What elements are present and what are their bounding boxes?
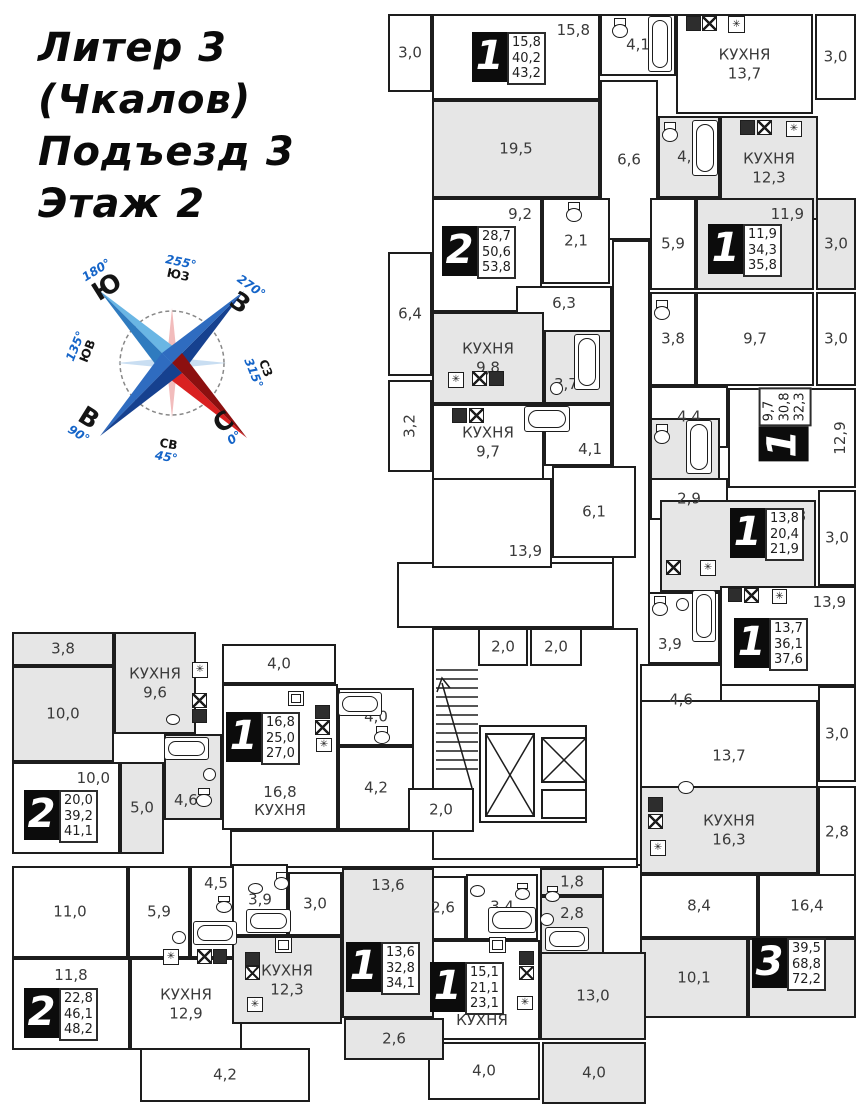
balcony-label: 4,0	[582, 1064, 606, 1083]
sink-icon	[166, 714, 180, 725]
vent-icon	[786, 121, 802, 137]
toilet-icon	[274, 872, 289, 890]
balcony: 3,0	[815, 14, 856, 100]
vent-icon	[247, 997, 263, 1012]
apartment-areas: 20,039,241,1	[59, 790, 98, 843]
shaft-label: 2,0	[544, 638, 568, 657]
toilet-icon	[515, 883, 530, 900]
washer-icon	[469, 408, 484, 423]
apartment-badge: 220,039,241,1	[24, 790, 98, 843]
room-label: 13,6	[371, 876, 404, 895]
toilet-icon	[654, 300, 670, 320]
kitchen-label: КУХНЯ12,3	[743, 149, 795, 187]
bathroom-label: 3,8	[661, 330, 685, 349]
apartment-badge: 113,632,834,1	[346, 942, 420, 995]
room: 10,0	[12, 666, 114, 762]
washer-icon	[666, 560, 681, 575]
balcony: 4,2	[140, 1048, 310, 1102]
balcony: 3,2	[388, 380, 432, 472]
sink-icon	[470, 885, 485, 897]
sink-icon	[172, 931, 186, 944]
tub-h-icon	[193, 921, 237, 945]
apartment-areas: 13,632,834,1	[381, 942, 420, 995]
washer-icon	[744, 588, 759, 603]
vent-icon	[700, 560, 716, 576]
kitchen-label: КУХНЯ13,7	[719, 45, 771, 83]
room-label: 11,0	[53, 903, 86, 922]
balcony-label: 3,2	[401, 414, 420, 438]
tub-h-icon	[246, 909, 291, 933]
hallway: 4,2	[338, 746, 414, 830]
hallway: 3,0	[288, 872, 342, 936]
tub-v-icon	[648, 16, 672, 72]
stove-icon	[213, 949, 227, 964]
hallway-label: 2,6	[382, 1030, 406, 1049]
sink-icon	[540, 913, 554, 926]
room: 10,1	[640, 938, 748, 1018]
fridge-icon	[489, 937, 506, 953]
stove-icon	[245, 952, 260, 966]
washer-icon	[648, 814, 663, 829]
hallway-label: 6,3	[552, 294, 576, 313]
room-label: 11,9	[771, 205, 804, 224]
toilet-icon	[374, 726, 390, 744]
tub-h-icon	[488, 907, 536, 933]
bathroom-label: 4,1	[626, 36, 650, 55]
sink-icon	[248, 883, 263, 894]
tub-h-icon	[545, 927, 589, 951]
room: 13,9	[432, 478, 552, 568]
toilet-icon	[662, 122, 678, 142]
hallway: 8,4	[640, 874, 758, 938]
hallway: 2,6	[344, 1018, 444, 1060]
apartment-badge: 19,730,832,3	[759, 387, 812, 461]
balcony: 2,8	[818, 786, 856, 878]
washer-icon	[192, 693, 207, 708]
apartment-rooms-count: 1	[430, 962, 465, 1012]
apartment-areas: 22,846,148,2	[59, 988, 98, 1041]
room: 19,5	[432, 100, 600, 198]
room: 11,0	[12, 866, 128, 958]
hallway-label: 5,0	[130, 799, 154, 818]
room-label: 16,4	[790, 897, 823, 916]
apartment-areas: 15,121,123,1	[465, 962, 504, 1015]
shaft-label: 2,0	[491, 638, 515, 657]
hallway-label: 2,9	[677, 490, 701, 509]
vent-icon	[192, 662, 208, 678]
apartment-areas: 28,750,653,8	[477, 226, 516, 279]
apartment-badge: 228,750,653,8	[442, 226, 516, 279]
vent-icon	[772, 589, 787, 604]
apartment-areas: 39,568,872,2	[787, 938, 826, 991]
apartment-rooms-count: 2	[442, 226, 477, 276]
apartment-areas: 9,730,832,3	[759, 387, 812, 426]
tub-h-icon	[524, 406, 570, 432]
room-label: 13,0	[576, 987, 609, 1006]
bathroom-label: 4,5	[204, 874, 228, 893]
stairs-elevators-icon	[432, 628, 638, 860]
toilet-icon	[566, 202, 582, 222]
hallway-label: 6,6	[617, 151, 641, 170]
kitchen: КУХНЯ12,9	[130, 958, 242, 1050]
balcony: 4,0	[542, 1042, 646, 1104]
balcony-label: 3,0	[824, 48, 848, 67]
balcony: 4,0	[222, 644, 336, 684]
toilet-icon	[612, 18, 628, 38]
apartment-badge: 339,568,872,2	[752, 938, 826, 991]
washer-icon	[315, 720, 330, 735]
toilet-icon	[652, 596, 668, 616]
apartment-badge: 115,840,243,2	[472, 32, 546, 85]
toilet-icon	[216, 896, 232, 913]
sink-icon	[678, 781, 694, 794]
apartment-areas: 11,934,335,8	[743, 224, 782, 277]
room-label: 10,0	[77, 769, 110, 788]
vent-icon	[517, 996, 533, 1010]
bathroom-label: 4,6	[174, 791, 198, 810]
kitchen-label: КУХНЯ12,9	[160, 985, 212, 1023]
balcony-label: 3,0	[824, 235, 848, 254]
apartment-badge: 111,934,335,8	[708, 224, 782, 277]
apartment-rooms-count: 1	[346, 942, 381, 992]
vent-icon	[728, 16, 745, 33]
apartment-areas: 16,825,027,0	[261, 712, 300, 765]
balcony-label: 3,0	[398, 44, 422, 63]
apartment-rooms-count: 1	[226, 712, 261, 762]
fridge-icon	[275, 937, 292, 953]
room: 16,4	[758, 874, 856, 938]
hallway-label: 3,0	[303, 895, 327, 914]
hallway-label: 6,1	[582, 503, 606, 522]
room-label: 19,5	[499, 140, 532, 159]
hallway-label: 8,4	[687, 897, 711, 916]
balcony: 6,4	[388, 252, 432, 376]
stove-icon	[315, 705, 330, 719]
sink-icon	[203, 768, 216, 781]
kitchen: КУХНЯ9,8	[432, 312, 544, 404]
hallway-label: 4,2	[364, 779, 388, 798]
balcony-label: 4,0	[472, 1062, 496, 1081]
tub-v-icon	[692, 120, 718, 176]
room-label: 9,7	[743, 330, 767, 349]
sink-icon	[676, 598, 689, 611]
sink-icon	[550, 382, 563, 395]
balcony-label: 3,0	[824, 330, 848, 349]
apartment-rooms-count: 1	[708, 224, 743, 274]
tub-v-icon	[686, 420, 712, 474]
hallway: 6,1	[552, 466, 636, 558]
toilet-icon	[196, 788, 212, 807]
vent-icon	[650, 840, 666, 856]
apartment-rooms-count: 2	[24, 988, 59, 1038]
tub-v-icon	[692, 590, 716, 642]
hallway: 5,9	[650, 198, 696, 290]
washer-icon	[519, 966, 534, 980]
wc-label: 2,1	[564, 232, 588, 251]
balcony-label: 3,0	[825, 725, 849, 744]
balcony-label: 6,4	[398, 305, 422, 324]
toilet-icon	[545, 886, 560, 902]
balcony: 3,0	[818, 686, 856, 782]
washer-icon	[472, 371, 487, 386]
vent-icon	[163, 949, 179, 965]
vent-icon	[448, 372, 464, 388]
stove-icon	[648, 797, 663, 812]
hallway-label: 4,6	[669, 691, 693, 710]
apartment-badge: 115,121,123,1	[430, 962, 504, 1015]
washer-icon	[197, 949, 212, 964]
room-label: 9,2	[508, 205, 532, 224]
stove-icon	[452, 408, 467, 423]
kitchen-living-label: 16,8КУХНЯ	[254, 783, 306, 821]
apartment-rooms-count: 1	[472, 32, 507, 82]
apartment-badge: 222,846,148,2	[24, 988, 98, 1041]
hallway: 5,0	[120, 762, 164, 854]
balcony-label: 4,0	[267, 655, 291, 674]
kitchen: КУХНЯ9,6	[114, 632, 196, 734]
room: 13,0	[540, 952, 646, 1040]
room-label: 10,0	[46, 705, 79, 724]
balcony: 4,0	[428, 1042, 540, 1100]
tub-v-icon	[574, 334, 600, 390]
fridge-icon	[288, 691, 304, 706]
bathroom-label: 2,8	[560, 904, 584, 923]
balcony: 3,0	[816, 198, 856, 290]
balcony: 3,0	[818, 490, 856, 586]
room-label: 13,9	[509, 542, 542, 561]
corridor	[397, 562, 637, 628]
balcony-label: 3,8	[51, 640, 75, 659]
apartment-badge: 113,820,421,9	[730, 508, 804, 561]
room-label: 13,9	[813, 593, 846, 612]
floorplan-page: Литер 3 (Чкалов) Подъезд 3 Этаж 2 180°Ю2…	[0, 0, 860, 1110]
room-label: 13,7	[712, 747, 745, 766]
apartment-badge: 113,736,137,6	[734, 618, 808, 671]
room-label: 10,1	[677, 969, 710, 988]
room-label: 11,8	[54, 966, 87, 985]
kitchen-label: КУХНЯ9,8	[462, 339, 514, 377]
apartment-rooms-count: 1	[730, 508, 765, 558]
apartment-badge: 116,825,027,0	[226, 712, 300, 765]
stove-icon	[728, 588, 742, 602]
room: 9,7	[696, 292, 814, 386]
vent-icon	[316, 738, 332, 752]
kitchen-label: КУХНЯ9,7	[462, 423, 514, 461]
washer-icon	[702, 16, 717, 31]
tub-h-icon	[338, 692, 382, 716]
hallway-label: 2,6	[431, 899, 455, 918]
balcony-label: 2,8	[825, 823, 849, 842]
hallway-label: 5,9	[661, 235, 685, 254]
apartment-areas: 13,820,421,9	[765, 508, 804, 561]
apartment-areas: 15,840,243,2	[507, 32, 546, 85]
stove-icon	[686, 16, 701, 31]
apartment-rooms-count: 1	[759, 426, 809, 461]
stove-icon	[519, 951, 534, 965]
toilet-icon	[654, 424, 670, 444]
stove-icon	[740, 120, 755, 135]
apartment-rooms-count: 1	[734, 618, 769, 668]
floorplan-canvas: 3,015,84,1КУХНЯ13,73,06,619,54,2КУХНЯ12,…	[0, 0, 860, 1110]
balcony-label: 3,0	[825, 529, 849, 548]
kitchen: КУХНЯ16,3	[640, 786, 818, 874]
kitchen-label: КУХНЯ16,3	[703, 811, 755, 849]
corridor-label: 2,0	[429, 801, 453, 820]
kitchen-label: КУХНЯ12,3	[261, 961, 313, 999]
washer-icon	[245, 966, 260, 980]
balcony: 3,8	[12, 632, 114, 666]
washer-icon	[757, 120, 772, 135]
stove-icon	[489, 371, 504, 386]
wc-label: 1,8	[560, 873, 584, 892]
apartment-rooms-count: 2	[24, 790, 59, 840]
balcony: 3,0	[816, 292, 856, 386]
stove-icon	[192, 709, 207, 723]
apartment-areas: 13,736,137,6	[769, 618, 808, 671]
balcony: 3,0	[388, 14, 432, 92]
kitchen-label: КУХНЯ9,6	[129, 664, 181, 702]
balcony-label: 4,2	[213, 1066, 237, 1085]
tub-h-icon	[164, 737, 209, 760]
hallway-label: 5,9	[147, 903, 171, 922]
hallway: 5,9	[128, 866, 190, 958]
room-label: 12,9	[831, 421, 850, 454]
living-room-label: 15,8	[557, 21, 590, 40]
bathroom-label: 3,9	[658, 635, 682, 654]
bathroom-label: 4,1	[578, 440, 602, 459]
apartment-rooms-count: 3	[752, 938, 787, 988]
